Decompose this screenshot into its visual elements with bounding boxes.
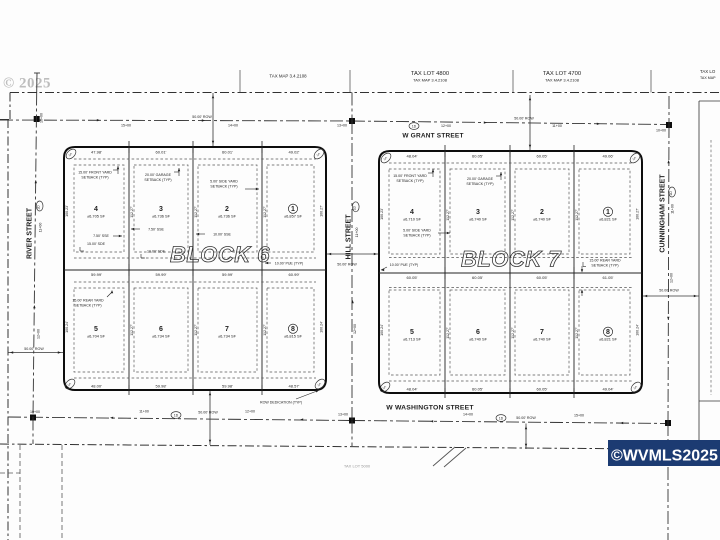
svg-text:15.00’ FRONT YARD: 15.00’ FRONT YARD bbox=[78, 171, 112, 175]
svg-text:50.00’ ROW: 50.00’ ROW bbox=[192, 115, 212, 119]
svg-text:100.23’: 100.23’ bbox=[65, 205, 69, 217]
svg-text:13+00: 13+00 bbox=[338, 413, 348, 417]
svg-text:15+00: 15+00 bbox=[121, 124, 131, 128]
svg-text:±6,740 SF: ±6,740 SF bbox=[533, 217, 552, 222]
svg-text:15.00’ REAR YARD: 15.00’ REAR YARD bbox=[72, 299, 104, 303]
svg-text:BLOCK 7: BLOCK 7 bbox=[461, 247, 562, 272]
svg-text:60.05’: 60.05’ bbox=[537, 387, 548, 392]
svg-text:10.00’ SSE: 10.00’ SSE bbox=[213, 233, 231, 237]
svg-text:1: 1 bbox=[291, 206, 295, 213]
svg-text:8: 8 bbox=[291, 326, 295, 333]
svg-text:±6,736 SF: ±6,736 SF bbox=[152, 214, 171, 219]
svg-text:59.99’: 59.99’ bbox=[156, 272, 167, 277]
svg-text:±6,740 SF: ±6,740 SF bbox=[533, 337, 552, 342]
svg-text:59.98’: 59.98’ bbox=[222, 384, 233, 389]
svg-text:60.05’: 60.05’ bbox=[407, 275, 418, 280]
svg-text:12+00: 12+00 bbox=[245, 410, 255, 414]
svg-text:TAX MAP: TAX MAP bbox=[700, 76, 716, 80]
svg-text:CUNNINGHAM STREET: CUNNINGHAM STREET bbox=[660, 174, 667, 253]
svg-text:112.27’: 112.27’ bbox=[263, 206, 267, 218]
svg-text:20.00’ GARAGE: 20.00’ GARAGE bbox=[145, 173, 172, 177]
svg-text:TAX MAP 3.4.2108: TAX MAP 3.4.2108 bbox=[413, 78, 448, 83]
svg-text:100.27’: 100.27’ bbox=[636, 208, 640, 220]
svg-text:100.24’: 100.24’ bbox=[320, 321, 324, 333]
svg-text:1D: 1D bbox=[412, 124, 417, 128]
svg-text:12+00: 12+00 bbox=[670, 273, 674, 283]
svg-text:±6,740 SF: ±6,740 SF bbox=[469, 217, 488, 222]
svg-text:TAX LOT 5000: TAX LOT 5000 bbox=[344, 464, 371, 469]
svg-text:7: 7 bbox=[540, 329, 544, 336]
svg-text:1D: 1D bbox=[174, 413, 179, 417]
svg-text:5: 5 bbox=[410, 329, 414, 336]
svg-text:W GRANT STREET: W GRANT STREET bbox=[402, 133, 463, 140]
svg-text:±6,821 SF: ±6,821 SF bbox=[599, 217, 618, 222]
svg-text:49.06’: 49.06’ bbox=[603, 154, 614, 159]
svg-text:ROW DEDICATION (TYP): ROW DEDICATION (TYP) bbox=[260, 401, 302, 405]
svg-text:112.27’: 112.27’ bbox=[130, 206, 134, 218]
svg-text:±6,815 SF: ±6,815 SF bbox=[284, 334, 303, 339]
svg-text:15+00: 15+00 bbox=[574, 414, 584, 418]
svg-text:112.27’: 112.27’ bbox=[511, 327, 515, 339]
svg-text:10+00: 10+00 bbox=[30, 410, 40, 414]
svg-text:±6,857 SF: ±6,857 SF bbox=[284, 214, 303, 219]
svg-text:15.00’ SDE: 15.00’ SDE bbox=[87, 242, 106, 246]
svg-text:±6,734 SF: ±6,734 SF bbox=[152, 334, 171, 339]
svg-text:12+00: 12+00 bbox=[441, 124, 451, 128]
svg-text:TAX LOT 4800: TAX LOT 4800 bbox=[411, 71, 449, 77]
svg-text:48.57’: 48.57’ bbox=[289, 384, 300, 389]
svg-text:TAX LO: TAX LO bbox=[700, 69, 716, 74]
svg-text:20.00’ GARAGE: 20.00’ GARAGE bbox=[467, 177, 494, 181]
svg-text:15.00’ FRONT YARD: 15.00’ FRONT YARD bbox=[393, 174, 427, 178]
svg-text:RIVER STREET: RIVER STREET bbox=[26, 207, 33, 259]
svg-text:50.00’ ROW: 50.00’ ROW bbox=[514, 117, 534, 121]
svg-text:±6,740 SF: ±6,740 SF bbox=[469, 337, 488, 342]
svg-text:SETBACK (TYP): SETBACK (TYP) bbox=[403, 234, 430, 238]
svg-text:59.98’: 59.98’ bbox=[156, 384, 167, 389]
svg-text:±6,713 SF: ±6,713 SF bbox=[403, 337, 422, 342]
svg-text:5.00’ SIDE YARD: 5.00’ SIDE YARD bbox=[210, 180, 238, 184]
svg-text:59.99’: 59.99’ bbox=[91, 272, 102, 277]
svg-text:49.04’: 49.04’ bbox=[603, 387, 614, 392]
svg-text:TAX LOT 4700: TAX LOT 4700 bbox=[543, 71, 581, 77]
svg-text:1: 1 bbox=[606, 209, 610, 216]
svg-text:48.04’: 48.04’ bbox=[407, 387, 418, 392]
svg-text:TAX MAP 3.4.2108: TAX MAP 3.4.2108 bbox=[545, 78, 580, 83]
svg-text:1D: 1D bbox=[499, 416, 504, 420]
svg-text:±6,710 SF: ±6,710 SF bbox=[403, 217, 422, 222]
svg-text:60.05’: 60.05’ bbox=[472, 275, 483, 280]
svg-text:60.01’: 60.01’ bbox=[156, 150, 167, 155]
svg-text:60.05’: 60.05’ bbox=[537, 154, 548, 159]
svg-text:100.24’: 100.24’ bbox=[380, 324, 384, 336]
svg-text:60.99’: 60.99’ bbox=[289, 272, 300, 277]
svg-text:11+00: 11+00 bbox=[552, 124, 562, 128]
svg-text:50.00’ ROW: 50.00’ ROW bbox=[337, 263, 357, 267]
svg-text:100.27’: 100.27’ bbox=[320, 205, 324, 217]
svg-text:6: 6 bbox=[159, 326, 163, 333]
svg-text:48.04’: 48.04’ bbox=[407, 154, 418, 159]
svg-text:5: 5 bbox=[94, 326, 98, 333]
svg-text:6: 6 bbox=[476, 329, 480, 336]
svg-text:47.98’: 47.98’ bbox=[91, 150, 102, 155]
svg-text:50.00’ ROW: 50.00’ ROW bbox=[198, 411, 218, 415]
svg-text:3: 3 bbox=[159, 206, 163, 213]
svg-text:SETBACK (TYP): SETBACK (TYP) bbox=[74, 304, 101, 308]
svg-text:±6,734 SF: ±6,734 SF bbox=[218, 334, 237, 339]
svg-text:SETBACK (TYP): SETBACK (TYP) bbox=[144, 178, 171, 182]
svg-text:SETBACK (TYP): SETBACK (TYP) bbox=[466, 182, 493, 186]
svg-text:61.05’: 61.05’ bbox=[603, 275, 614, 280]
svg-text:14+00: 14+00 bbox=[228, 124, 238, 128]
svg-text:SETBACK (TYP): SETBACK (TYP) bbox=[210, 185, 237, 189]
svg-text:7.50’ SSE: 7.50’ SSE bbox=[93, 234, 109, 238]
svg-text:HILL STREET: HILL STREET bbox=[346, 214, 353, 260]
svg-text:60.05’: 60.05’ bbox=[472, 154, 483, 159]
svg-text:112.27’: 112.27’ bbox=[263, 324, 267, 336]
svg-text:12+00: 12+00 bbox=[37, 329, 41, 339]
svg-text:3: 3 bbox=[476, 209, 480, 216]
svg-text:10+00: 10+00 bbox=[40, 113, 44, 123]
svg-text:10.00’ PUE (TYP): 10.00’ PUE (TYP) bbox=[275, 262, 303, 266]
svg-text:50.00’ ROW: 50.00’ ROW bbox=[516, 416, 536, 420]
svg-text:11+00: 11+00 bbox=[671, 204, 675, 214]
svg-text:W WASHINGTON STREET: W WASHINGTON STREET bbox=[386, 405, 474, 412]
svg-text:©WVMLS2025: ©WVMLS2025 bbox=[611, 448, 718, 465]
svg-text:112.27’: 112.27’ bbox=[194, 324, 198, 336]
svg-text:TAX MAP 3.4.2108: TAX MAP 3.4.2108 bbox=[269, 74, 307, 79]
svg-text:112.27’: 112.27’ bbox=[511, 209, 515, 221]
svg-text:±6,704 SF: ±6,704 SF bbox=[87, 334, 106, 339]
svg-text:112.27’: 112.27’ bbox=[194, 206, 198, 218]
svg-text:2: 2 bbox=[225, 206, 229, 213]
svg-text:© 2025: © 2025 bbox=[3, 76, 51, 92]
svg-text:112.27’: 112.27’ bbox=[446, 327, 450, 339]
svg-text:49.02’: 49.02’ bbox=[289, 150, 300, 155]
svg-text:60.01’: 60.01’ bbox=[222, 150, 233, 155]
svg-text:11+00: 11+00 bbox=[139, 410, 149, 414]
svg-text:SETBACK (TYP): SETBACK (TYP) bbox=[396, 179, 423, 183]
svg-text:8: 8 bbox=[606, 329, 610, 336]
svg-text:12+00: 12+00 bbox=[353, 324, 357, 334]
svg-text:11+00: 11+00 bbox=[38, 223, 42, 233]
svg-text:1D: 1D bbox=[37, 205, 41, 210]
svg-text:112.27’: 112.27’ bbox=[575, 209, 579, 221]
svg-text:10+00: 10+00 bbox=[656, 129, 666, 133]
svg-text:13+00: 13+00 bbox=[337, 124, 347, 128]
svg-text:100.23’: 100.23’ bbox=[380, 208, 384, 220]
svg-text:±6,736 SF: ±6,736 SF bbox=[218, 214, 237, 219]
svg-text:112.27’: 112.27’ bbox=[130, 324, 134, 336]
svg-text:10.00’ PUE (TYP): 10.00’ PUE (TYP) bbox=[390, 263, 418, 267]
svg-text:7.50’ SSE: 7.50’ SSE bbox=[148, 228, 164, 232]
svg-text:50.00’ ROW: 50.00’ ROW bbox=[24, 347, 44, 351]
svg-text:60.05’: 60.05’ bbox=[537, 275, 548, 280]
svg-text:14+00: 14+00 bbox=[463, 413, 473, 417]
svg-text:SETBACK (TYP): SETBACK (TYP) bbox=[591, 264, 618, 268]
svg-text:59.99’: 59.99’ bbox=[222, 272, 233, 277]
svg-text:11+00: 11+00 bbox=[355, 227, 359, 237]
svg-text:15.00’ REAR YARD: 15.00’ REAR YARD bbox=[589, 259, 621, 263]
svg-text:50.00’ ROW: 50.00’ ROW bbox=[659, 289, 679, 293]
svg-text:1D: 1D bbox=[353, 205, 357, 210]
svg-text:112.27’: 112.27’ bbox=[446, 209, 450, 221]
svg-text:7: 7 bbox=[225, 326, 229, 333]
svg-text:48.00’: 48.00’ bbox=[91, 384, 102, 389]
svg-text:4: 4 bbox=[94, 206, 98, 213]
svg-text:10.00’ SDE: 10.00’ SDE bbox=[147, 250, 166, 254]
svg-text:SETBACK (TYP): SETBACK (TYP) bbox=[81, 176, 108, 180]
svg-text:±6,705 SF: ±6,705 SF bbox=[87, 214, 106, 219]
svg-text:±6,821 SF: ±6,821 SF bbox=[599, 337, 618, 342]
svg-text:60.05’: 60.05’ bbox=[472, 387, 483, 392]
svg-text:5.00’ SIDE YARD: 5.00’ SIDE YARD bbox=[403, 229, 431, 233]
svg-text:4: 4 bbox=[410, 209, 414, 216]
svg-text:1D: 1D bbox=[669, 191, 673, 196]
svg-text:100.24’: 100.24’ bbox=[65, 321, 69, 333]
svg-text:2: 2 bbox=[540, 209, 544, 216]
svg-text:112.27’: 112.27’ bbox=[575, 327, 579, 339]
svg-text:100.24’: 100.24’ bbox=[636, 324, 640, 336]
svg-text:BLOCK 6: BLOCK 6 bbox=[170, 242, 270, 267]
